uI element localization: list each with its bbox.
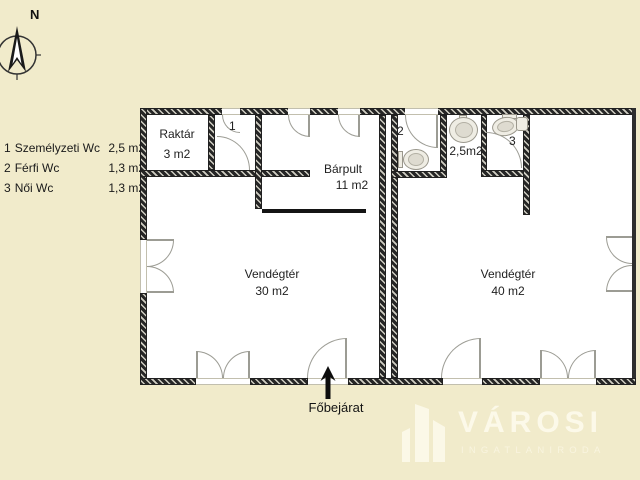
wall-bottom-seg5: [596, 378, 636, 385]
bar-counter: [262, 209, 366, 213]
left-window-leaf-b: [147, 291, 174, 293]
double-door-opening-left: [196, 378, 250, 385]
vendegter-left-label: Vendégtér 30 m2: [230, 266, 314, 300]
left-window-opening: [140, 240, 147, 293]
right-door-leaf: [479, 338, 481, 378]
wc-area-label: 2,5m2: [436, 143, 496, 159]
wall-divider-right: [391, 115, 398, 378]
wall-bottom-seg1: [140, 378, 196, 385]
wc2-door-opening: [405, 108, 438, 115]
raktar-label: Raktár 3 m2: [145, 124, 209, 164]
legend-num: 2: [4, 161, 11, 175]
legend: 1 Személyzeti Wc 2,5 m2 2 Férfi Wc 1,3 m…: [4, 138, 145, 198]
wall-bottom-seg4: [482, 378, 540, 385]
raktar-name: Raktár: [145, 124, 209, 144]
barpult-area: 11 m2: [322, 177, 382, 193]
right-window-leaf-b: [606, 290, 632, 292]
main-entrance-door-leaf: [345, 338, 347, 378]
wc2-number: 2: [397, 123, 404, 139]
vendegter-right-label: Vendégtér 40 m2: [466, 266, 550, 300]
watermark-tagline: INGATLANIRODA: [461, 445, 606, 456]
vendegter-left-name: Vendégtér: [230, 266, 314, 283]
legend-row-1: 1 Személyzeti Wc 2,5 m2: [4, 138, 145, 158]
compass-north-label: N: [30, 7, 39, 22]
wall-top: [140, 108, 636, 115]
wall-divider-left: [379, 115, 386, 378]
legend-name: Személyzeti Wc: [15, 141, 109, 155]
compass-rose: N: [0, 2, 50, 84]
buildings-icon: [400, 402, 448, 464]
wall-bottom-seg2: [250, 378, 308, 385]
wall-wc2-bottom: [391, 171, 447, 178]
watermark-logo: VÁROSI INGATLANIRODA: [400, 400, 636, 472]
legend-num: 3: [4, 181, 11, 195]
double-door-left-leaf-b: [248, 351, 250, 378]
wall-below-raktar: [140, 170, 310, 177]
double-door-opening-right: [540, 378, 596, 385]
vendegter-left-area: 30 m2: [230, 283, 314, 300]
barpult-door-leaf-2: [358, 115, 360, 137]
wc3-number: 3: [509, 133, 516, 149]
vendegter-right-area: 40 m2: [466, 283, 550, 300]
entrance-label: Főbejárat: [284, 400, 388, 415]
entrance-arrow-icon: [320, 366, 336, 400]
wc1-door-opening: [222, 108, 240, 115]
toilet-bowl-wc2: [408, 153, 424, 166]
watermark-brand: VÁROSI: [458, 406, 603, 440]
wall-wc1-right: [255, 115, 262, 209]
raktar-area: 3 m2: [145, 144, 209, 164]
vendegter-right-name: Vendégtér: [466, 266, 550, 283]
wall-left-lower: [140, 293, 147, 385]
barpult-door-opening-2: [338, 108, 360, 115]
legend-row-3: 3 Női Wc 1,3 m2: [4, 178, 145, 198]
legend-name: Női Wc: [15, 181, 109, 195]
legend-num: 1: [4, 141, 11, 155]
wall-bottom-seg3: [348, 378, 443, 385]
sink-bowl: [455, 122, 473, 138]
wall-right: [632, 108, 636, 385]
door-opening-right1: [443, 378, 482, 385]
wc1-number: 1: [229, 118, 236, 134]
basin-icon-wc3: [516, 117, 528, 131]
barpult-door-leaf-1: [308, 115, 310, 137]
legend-row-2: 2 Férfi Wc 1,3 m2: [4, 158, 145, 178]
barpult-door-opening-1: [288, 108, 310, 115]
double-door-right-leaf-b: [594, 350, 596, 378]
barpult-name: Bárpult: [310, 161, 376, 177]
floor-plan-page: N 1 Személyzeti Wc 2,5 m2 2 Férfi Wc 1,3…: [0, 0, 640, 480]
legend-name: Férfi Wc: [15, 161, 109, 175]
wall-raktar-right: [208, 115, 215, 170]
